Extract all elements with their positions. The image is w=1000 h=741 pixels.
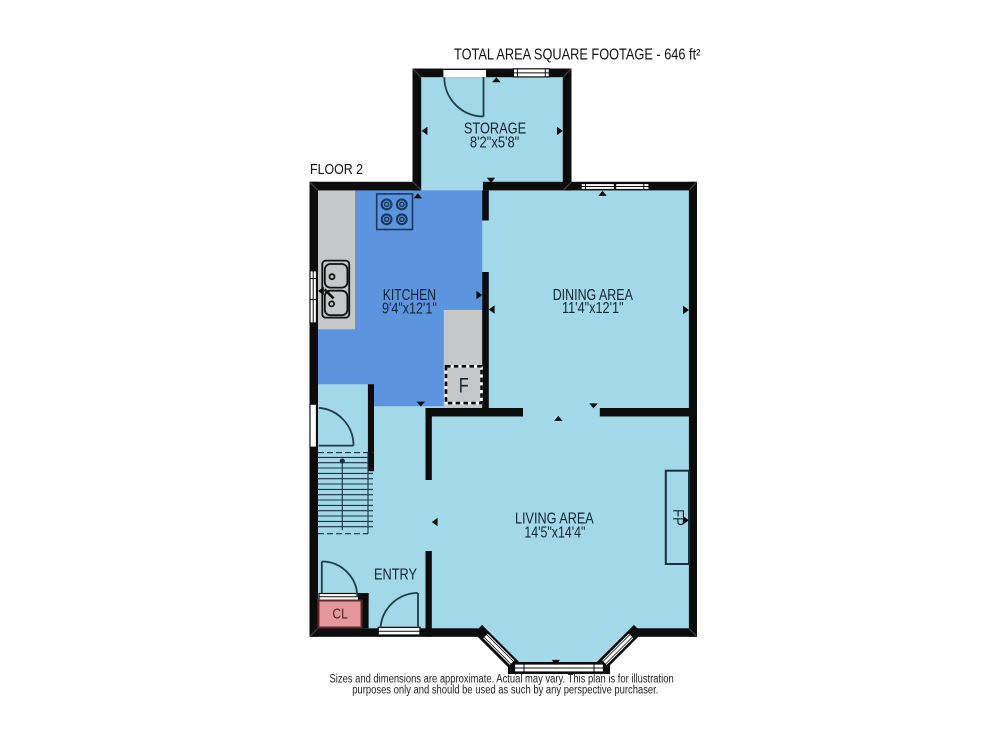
svg-text:ENTRY: ENTRY [374,566,417,583]
svg-text:14'5"x14'4": 14'5"x14'4" [524,525,585,542]
svg-text:11'4"x12'1": 11'4"x12'1" [562,300,624,317]
svg-text:F: F [459,374,469,397]
svg-text:TOTAL AREA SQUARE FOOTAGE - 64: TOTAL AREA SQUARE FOOTAGE - 646 ft² [454,47,700,64]
svg-text:FLOOR 2: FLOOR 2 [310,161,363,178]
svg-text:CL: CL [332,606,347,623]
svg-text:9'4"x12'1": 9'4"x12'1" [382,301,437,318]
svg-text:purposes only and should be us: purposes only and should be used as such… [352,685,658,697]
svg-text:8'2"x5'8": 8'2"x5'8" [470,134,519,151]
